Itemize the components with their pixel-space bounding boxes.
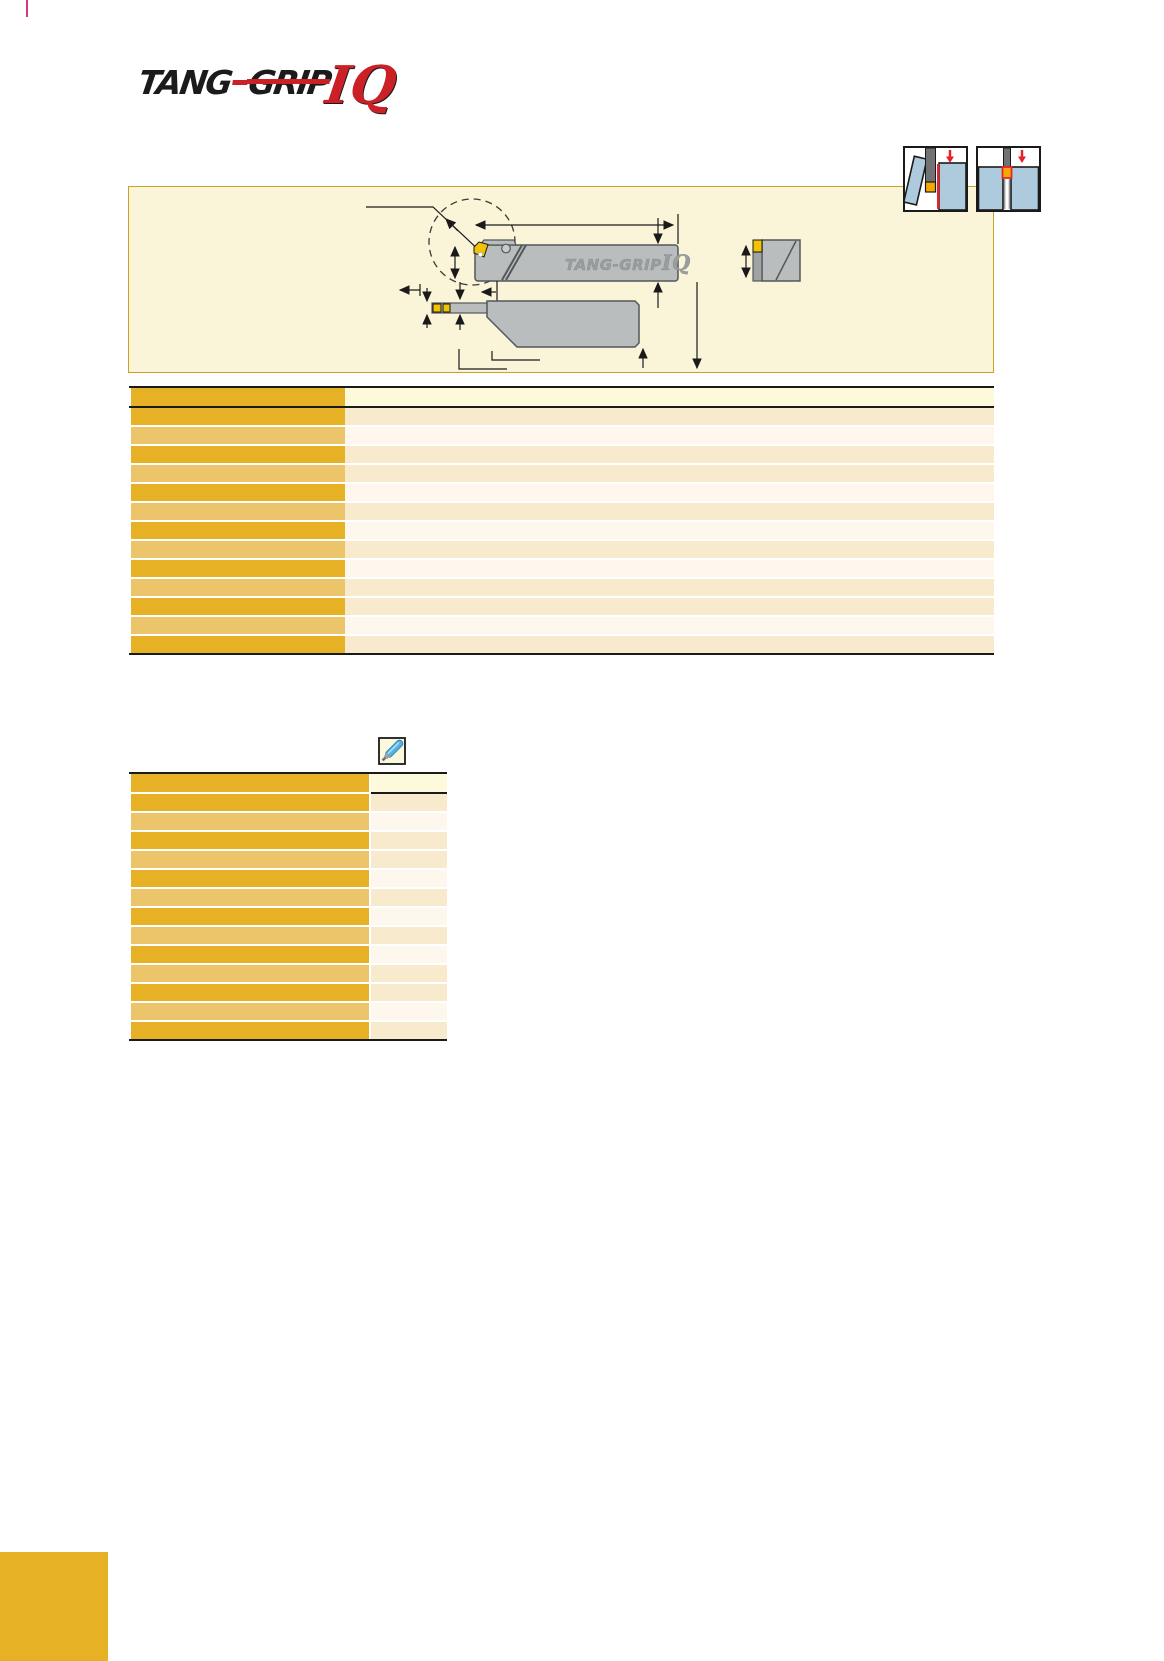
workpiece-left [979,167,1004,210]
table-row [129,522,994,539]
row-left-cell [131,889,369,906]
header-left-cell [131,774,369,792]
row-right-cell [345,465,994,482]
primary-table [129,386,994,655]
footer-gold-tab [0,1552,108,1661]
row-right-cell [371,1022,447,1039]
table-bottom-border [129,1039,447,1041]
row-right-cell [345,598,994,615]
brand-logo: TANG GRIP IQ [135,66,398,107]
row-right-cell [345,484,994,501]
table-header-row [129,388,994,406]
secondary-table [129,772,447,1041]
header-left-cell [131,388,345,406]
table-row [129,579,994,596]
row-right-cell [371,1003,447,1020]
insert [1003,167,1012,178]
blade-insert [443,304,450,312]
row-right-cell [371,889,447,906]
table-row [129,965,447,982]
row-left-cell [131,484,345,501]
row-right-cell [345,503,994,520]
row-right-cell [345,408,994,425]
table-row [129,1003,447,1020]
table-row [129,465,994,482]
row-left-cell [131,408,345,425]
logo-iq: IQ [323,66,398,107]
table-row [129,598,994,615]
side-view-insert [753,240,762,252]
row-right-cell [345,579,994,596]
table-row [129,636,994,653]
table-row [129,813,447,830]
logo-tang: TANG [136,66,233,99]
row-left-cell [131,908,369,925]
row-right-cell [371,832,447,849]
row-right-cell [371,870,447,887]
holder-top-view: TANG-GRIPIQ [474,240,691,281]
row-left-cell [131,1003,369,1020]
table-row [129,832,447,849]
table-row [129,870,447,887]
header-right-cell [371,774,447,792]
row-left-cell [131,598,345,615]
table-row [129,617,994,634]
screwdriver-icon [378,737,406,765]
row-left-cell [131,503,345,520]
row-left-cell [131,984,369,1001]
row-left-cell [131,946,369,963]
diagram-panel: TANG-GRIPIQ [128,178,994,373]
row-right-cell [345,522,994,539]
row-left-cell [131,427,345,444]
row-right-cell [345,446,994,463]
workpiece-right [1011,167,1039,210]
row-left-cell [131,579,345,596]
table-header-row [129,774,447,792]
table-row [129,427,994,444]
row-left-cell [131,1022,369,1039]
clamp-hole [502,244,511,253]
row-right-cell [371,946,447,963]
row-right-cell [371,908,447,925]
row-left-cell [131,465,345,482]
row-left-cell [131,560,345,577]
row-left-cell [131,541,345,558]
row-right-cell [345,541,994,558]
row-left-cell [131,446,345,463]
row-right-cell [371,794,447,811]
row-left-cell [131,794,369,811]
row-right-cell [371,927,447,944]
table-row [129,560,994,577]
row-right-cell [345,560,994,577]
table-row [129,927,447,944]
table-row [129,984,447,1001]
table-row [129,1022,447,1039]
table-row [129,851,447,868]
table-row [129,541,994,558]
row-left-cell [131,813,369,830]
row-right-cell [345,427,994,444]
table-row [129,446,994,463]
row-left-cell [131,965,369,982]
row-right-cell [371,851,447,868]
row-left-cell [131,851,369,868]
blade-insert [433,304,441,312]
tool-blade [926,148,936,183]
logo-red-strike [247,79,331,84]
parting-application-icon [903,146,968,212]
row-right-cell [371,965,447,982]
row-left-cell [131,927,369,944]
row-right-cell [371,813,447,830]
row-left-cell [131,832,369,849]
insert [926,182,936,192]
table-row [129,908,447,925]
header-right-cell [345,388,994,406]
workpiece [939,163,966,210]
row-right-cell [345,636,994,653]
grooving-application-icon [976,146,1041,212]
row-left-cell [131,870,369,887]
row-left-cell [131,636,345,653]
table-row [129,794,447,811]
table-row [129,408,994,425]
table-row [129,946,447,963]
row-right-cell [371,984,447,1001]
table-bottom-border [129,653,994,655]
table-row [129,889,447,906]
catalog-page: TANG GRIP IQ TANG-GRIPIQ [0,0,1164,1661]
row-left-cell [131,617,345,634]
crop-mark-top [26,0,28,17]
holder-side-view [746,240,800,281]
row-left-cell [131,522,345,539]
row-right-cell [345,617,994,634]
table-row [129,484,994,501]
table-row [129,503,994,520]
